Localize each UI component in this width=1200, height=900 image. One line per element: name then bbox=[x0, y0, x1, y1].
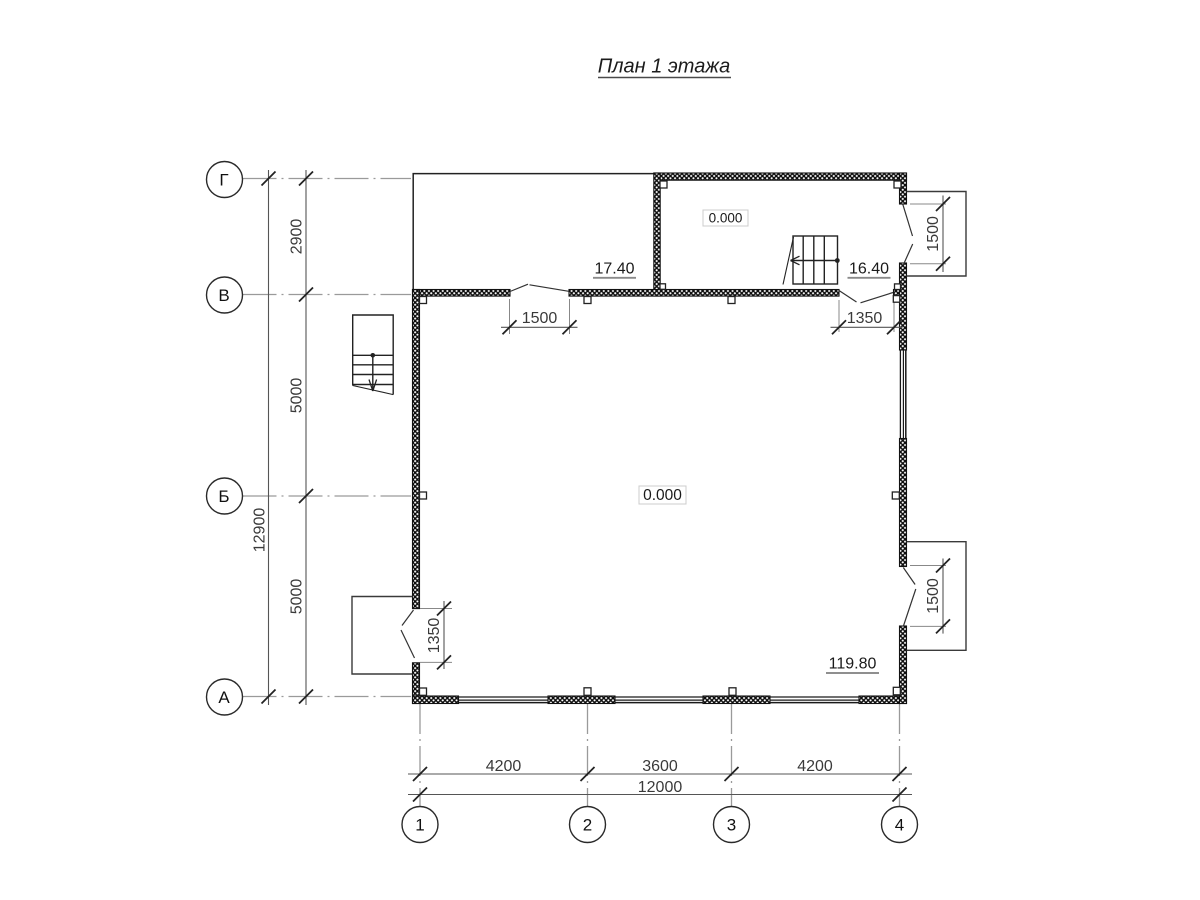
svg-text:5000: 5000 bbox=[289, 378, 306, 414]
svg-text:Г: Г bbox=[219, 171, 228, 190]
svg-text:В: В bbox=[218, 286, 229, 305]
svg-text:3600: 3600 bbox=[642, 758, 678, 775]
svg-text:4200: 4200 bbox=[486, 758, 522, 775]
svg-text:12000: 12000 bbox=[638, 779, 683, 796]
svg-text:1500: 1500 bbox=[522, 310, 558, 327]
svg-text:1500: 1500 bbox=[925, 216, 942, 252]
svg-text:0.000: 0.000 bbox=[709, 210, 743, 225]
svg-text:План 1 этажа: План 1 этажа bbox=[598, 56, 730, 78]
svg-text:4200: 4200 bbox=[797, 758, 833, 775]
svg-text:1350: 1350 bbox=[847, 310, 883, 327]
svg-text:1500: 1500 bbox=[925, 578, 942, 614]
svg-text:А: А bbox=[218, 688, 230, 707]
svg-text:5000: 5000 bbox=[289, 579, 306, 615]
svg-text:12900: 12900 bbox=[252, 508, 269, 553]
svg-text:1350: 1350 bbox=[426, 618, 443, 654]
svg-text:2: 2 bbox=[583, 816, 592, 835]
svg-text:0.000: 0.000 bbox=[643, 487, 682, 504]
svg-text:2900: 2900 bbox=[289, 219, 306, 255]
svg-text:1: 1 bbox=[415, 816, 424, 835]
svg-text:17.40: 17.40 bbox=[594, 261, 634, 278]
svg-text:119.80: 119.80 bbox=[829, 656, 877, 673]
svg-text:Б: Б bbox=[218, 487, 229, 506]
svg-text:3: 3 bbox=[727, 816, 736, 835]
svg-text:16.40: 16.40 bbox=[849, 261, 889, 278]
svg-text:4: 4 bbox=[895, 816, 904, 835]
